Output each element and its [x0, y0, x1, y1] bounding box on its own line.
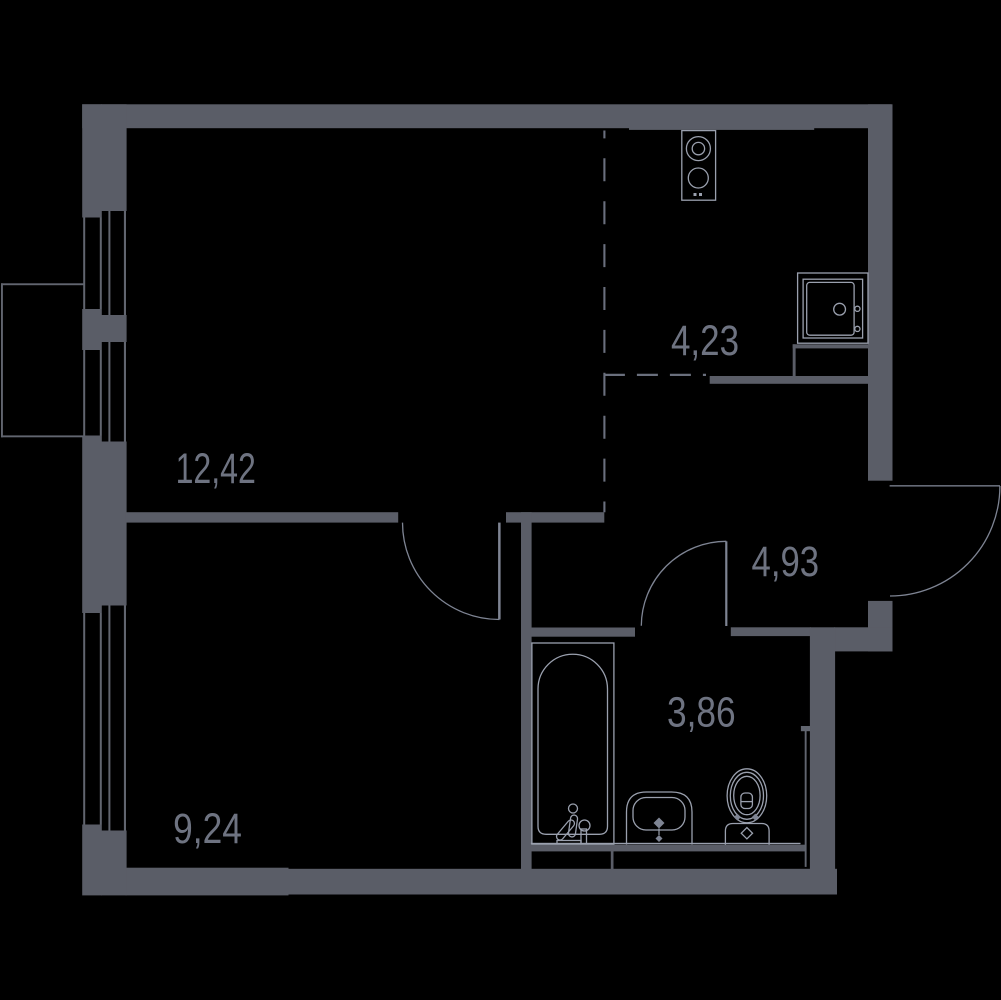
svg-text:4,93: 4,93 — [752, 539, 820, 586]
svg-text:9,24: 9,24 — [173, 806, 242, 853]
svg-text:12,42: 12,42 — [176, 445, 256, 492]
svg-text:3,86: 3,86 — [667, 689, 736, 736]
svg-text:4,23: 4,23 — [671, 318, 739, 365]
